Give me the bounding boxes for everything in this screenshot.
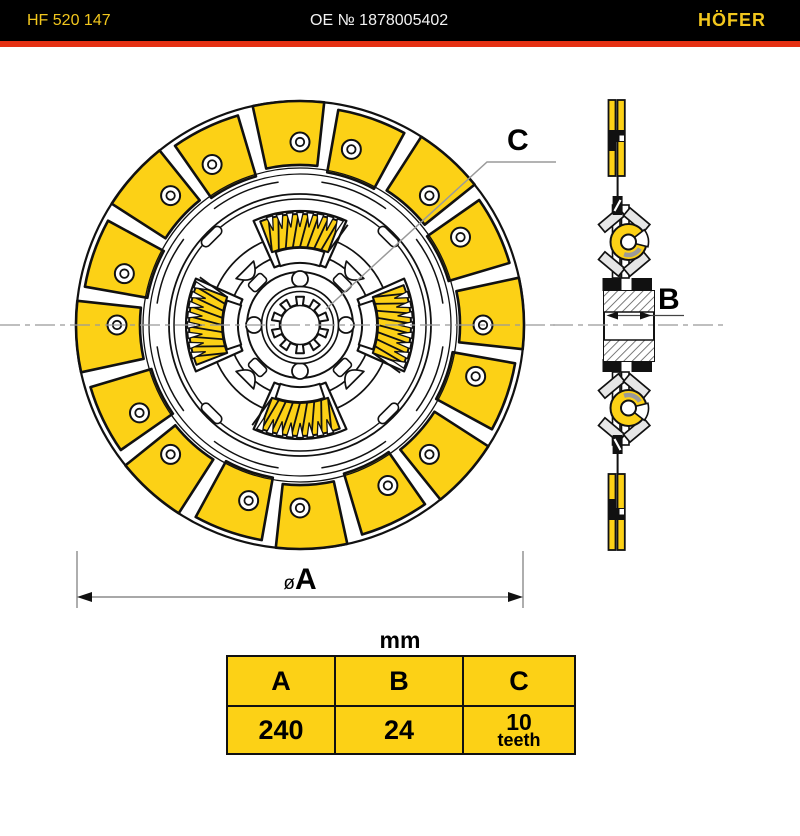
table-header-c: C (463, 656, 575, 706)
label-diameter-a: øA (230, 563, 370, 597)
value-b: 24 (335, 706, 463, 754)
value-c: 10 teeth (463, 706, 575, 754)
product-card: HF 520 147 OE № 1878005402 HÖFER C B øA … (0, 0, 800, 836)
label-spline-c: C (507, 124, 529, 158)
table-header-b: B (335, 656, 463, 706)
table-header-a: A (227, 656, 335, 706)
value-a: 240 (227, 706, 335, 754)
diameter-symbol: ø (283, 573, 295, 594)
table-value-row: 240 24 10 teeth (227, 706, 575, 754)
units-title: mm (226, 627, 574, 654)
dimensions-table: A B C 240 24 10 teeth (226, 655, 576, 755)
table-header-row: A B C (227, 656, 575, 706)
label-width-b: B (658, 283, 680, 317)
